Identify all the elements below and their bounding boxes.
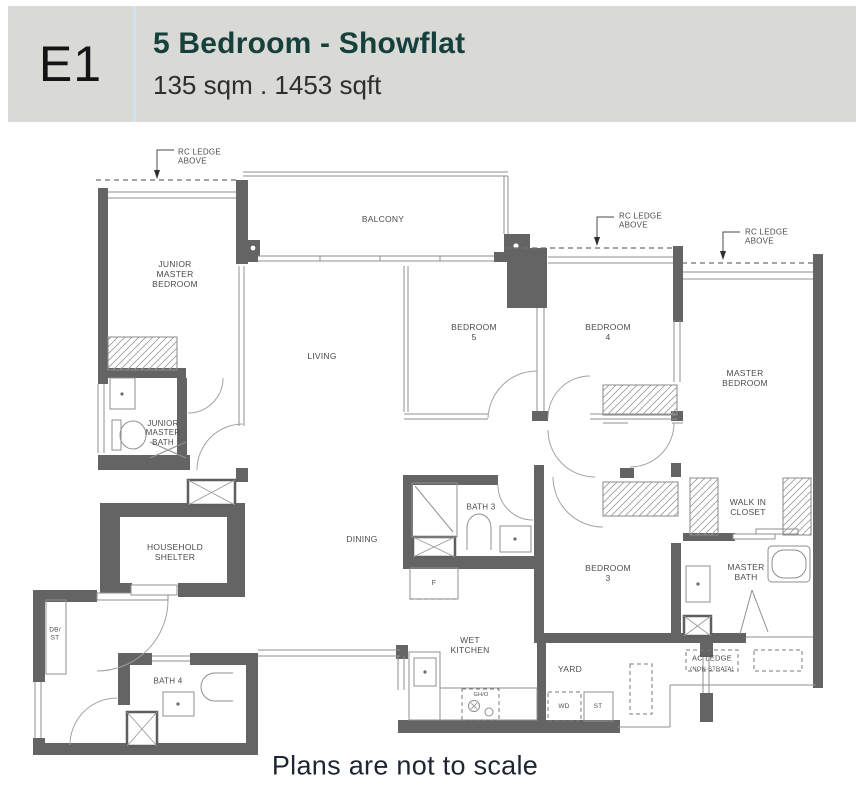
label-washer-dryer: WD [558, 703, 569, 711]
label-living: LIVING [307, 351, 336, 361]
label-bath-3: BATH 3 [467, 502, 496, 511]
label-fridge: F [432, 580, 437, 588]
scale-disclaimer: Plans are not to scale [272, 751, 538, 782]
label-rc-ledge-1: RC LEDGE ABOVE [178, 148, 221, 167]
label-bedroom-3: BEDROOM 3 [585, 563, 631, 583]
label-walk-in-closet: WALK IN CLOSET [730, 497, 766, 517]
label-bedroom-5: BEDROOM 5 [451, 322, 497, 342]
label-ac-ledge: AC LEDGE [692, 655, 732, 664]
label-bath-4: BATH 4 [154, 676, 183, 685]
service-boxes [246, 238, 525, 256]
label-master-bedroom: MASTER BEDROOM [722, 368, 768, 388]
shafts [127, 480, 711, 746]
label-db-st: DB/ ST [49, 626, 61, 641]
rc-ledge-lines [96, 150, 813, 263]
floorplan-page: E1 5 Bedroom - Showflat 135 sqm . 1453 s… [0, 0, 856, 800]
label-hob: GH/O [473, 692, 488, 698]
label-wet-kitchen: WET KITCHEN [450, 635, 489, 655]
label-yard: YARD [558, 664, 582, 674]
label-master-bath: MASTER BATH [728, 562, 765, 582]
label-bedroom-4: BEDROOM 4 [585, 322, 631, 342]
label-dining: DINING [346, 534, 377, 544]
label-ac-ledge-sub: (NON-STRATA) [690, 667, 734, 674]
floor-plan: RC LEDGE ABOVERC LEDGE ABOVERC LEDGE ABO… [0, 0, 856, 800]
label-household-shelter: HOUSEHOLD SHELTER [147, 542, 203, 562]
label-junior-master-bath: JUNIOR MASTER BATH [146, 419, 181, 447]
label-balcony: BALCONY [362, 214, 404, 224]
label-rc-ledge-2: RC LEDGE ABOVE [619, 212, 662, 231]
label-junior-master-bedroom: JUNIOR MASTER BEDROOM [152, 259, 198, 289]
floor-plan-drawing [0, 0, 856, 800]
label-storage: ST [594, 703, 603, 711]
label-rc-ledge-3: RC LEDGE ABOVE [745, 228, 788, 247]
